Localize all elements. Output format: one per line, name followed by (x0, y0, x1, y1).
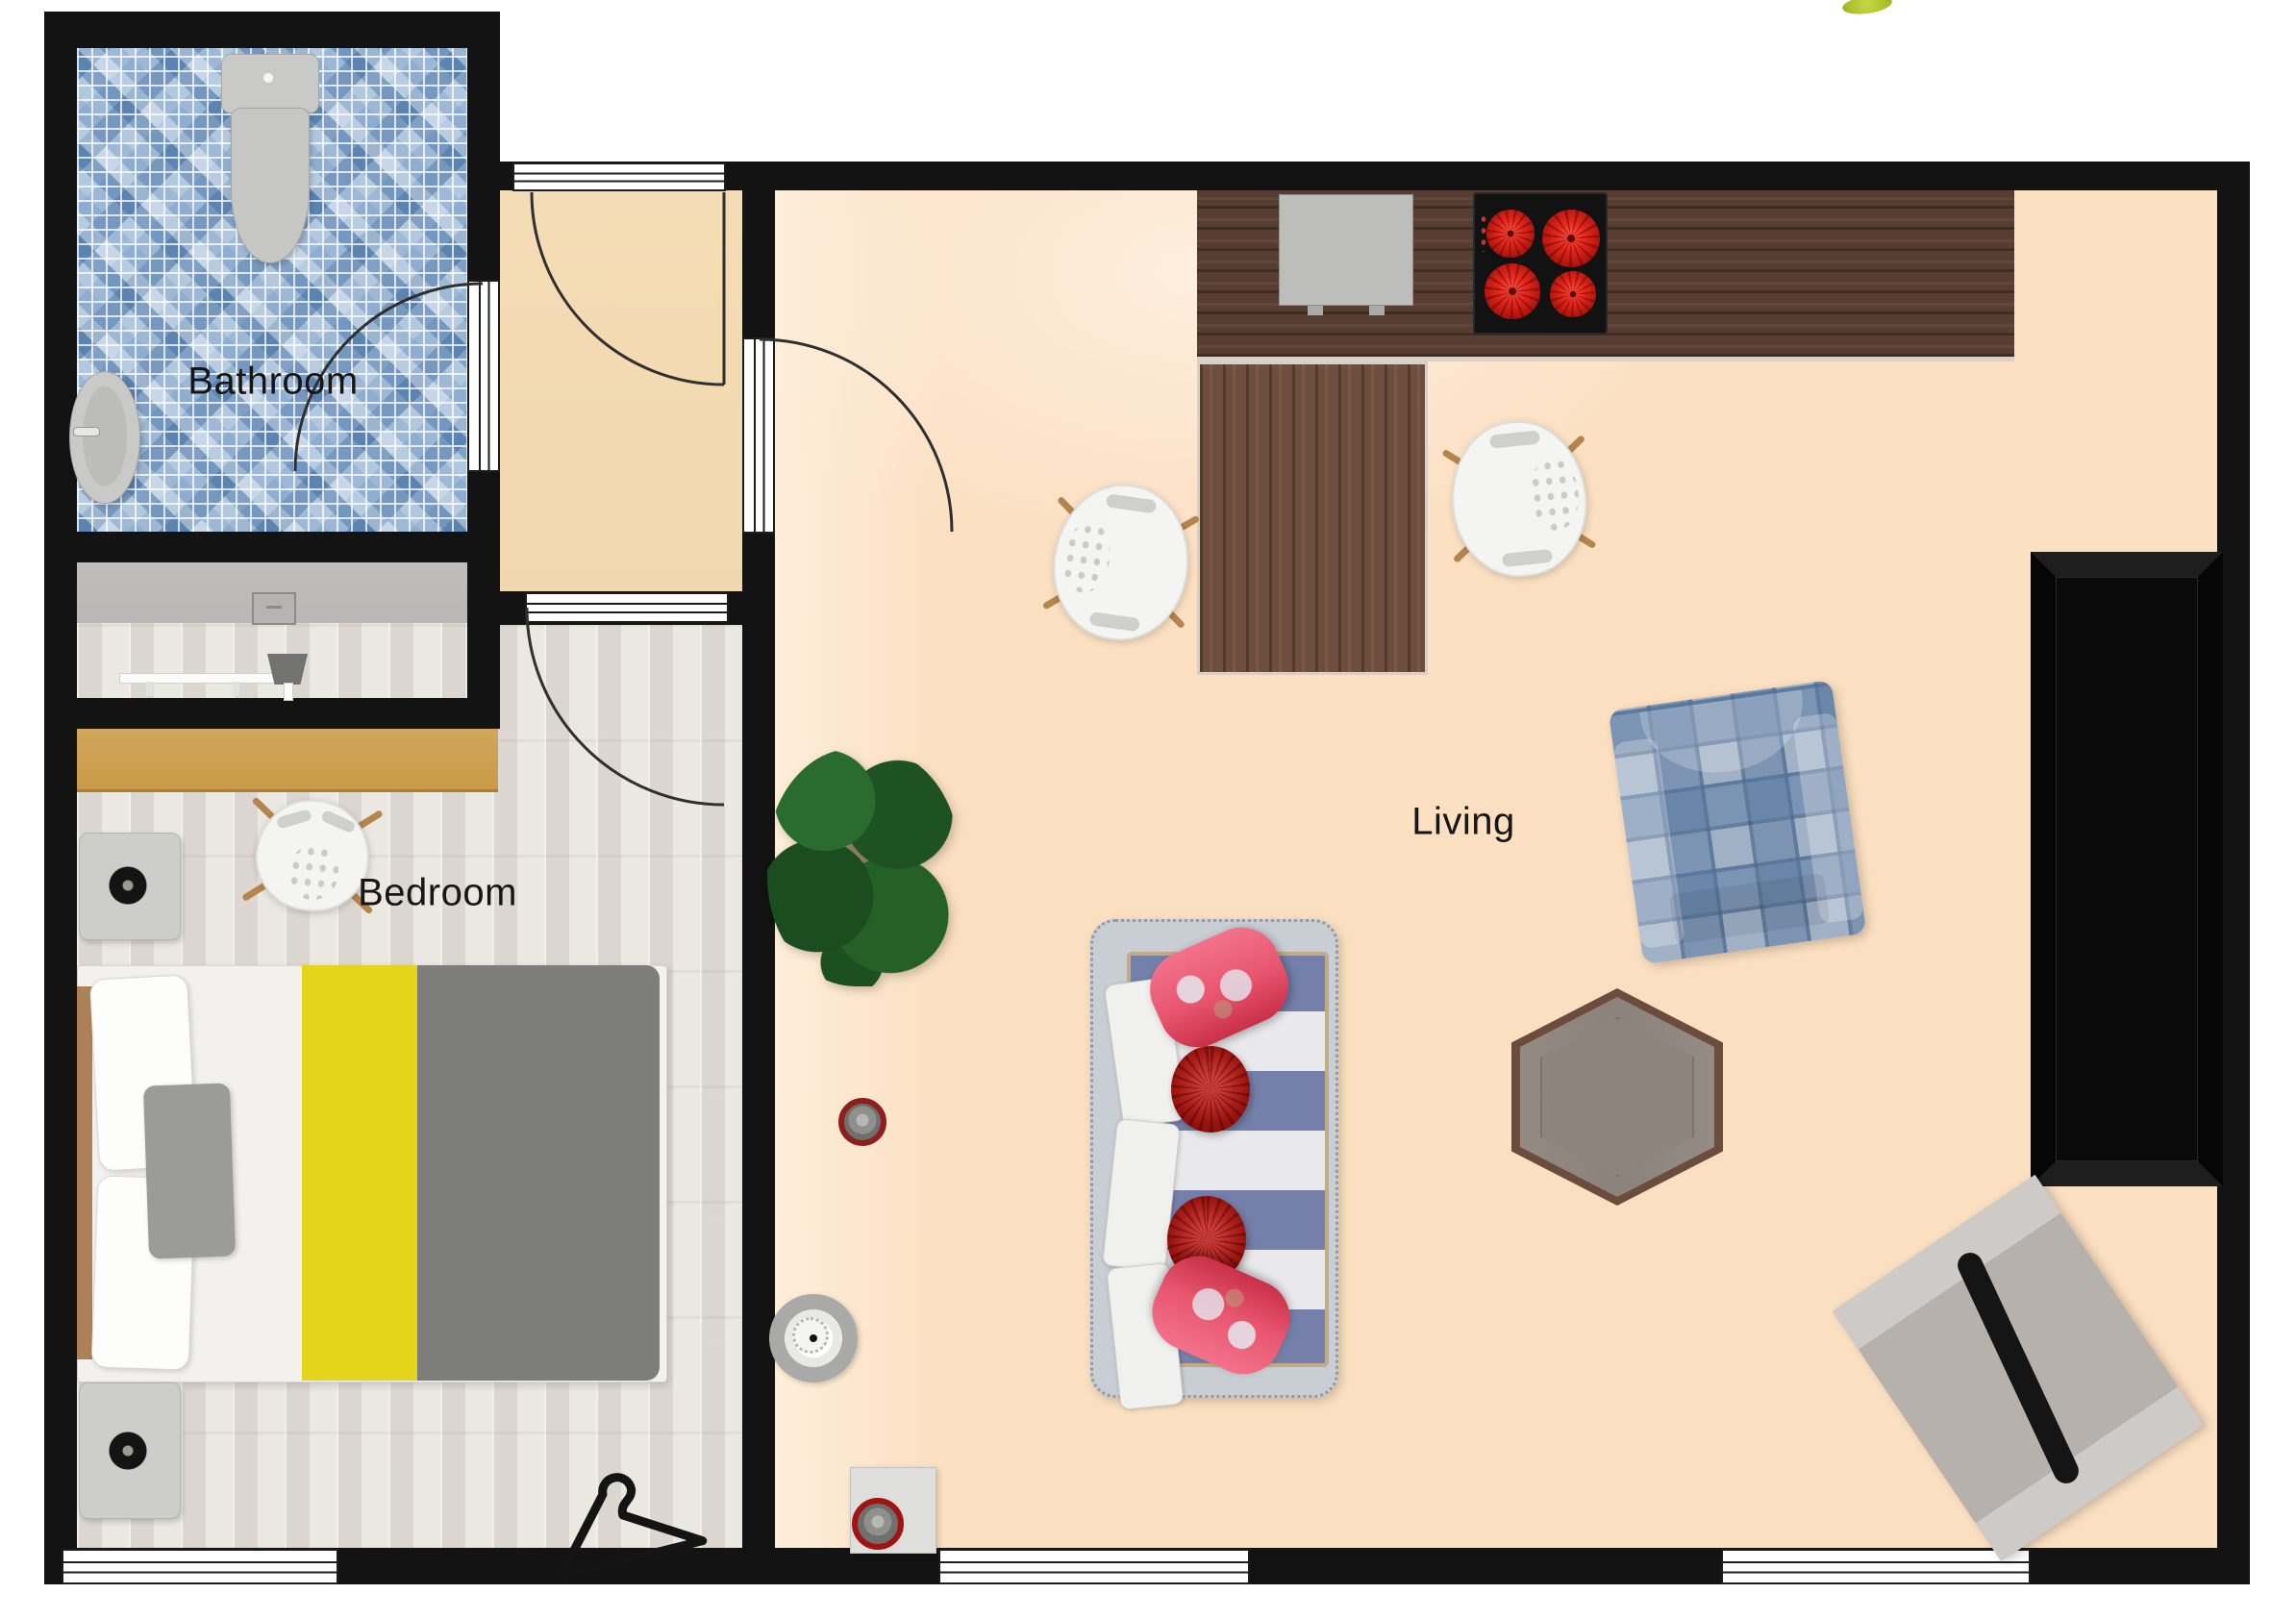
hallway-floor (500, 190, 742, 593)
chair-feather-pattern (286, 842, 341, 903)
floor-plan-canvas: Bathroom Bedroom Living (0, 0, 2296, 1619)
nightstand-speaker-top[interactable] (79, 833, 181, 940)
bench-black-bar (1954, 1249, 2083, 1487)
sofa-red-round-pillow (1171, 1046, 1250, 1133)
room-label-bathroom: Bathroom (187, 361, 358, 404)
dining-island[interactable] (1197, 361, 1428, 675)
bed-blanket-gray (417, 965, 660, 1381)
bathroom-door-frame[interactable] (467, 280, 500, 472)
chair-slot (1106, 493, 1157, 513)
cooktop-control-dots (1479, 213, 1488, 252)
bed-headboard (77, 986, 92, 1359)
chair-feather-pattern (1527, 456, 1583, 534)
living-window-right[interactable] (1721, 1549, 2031, 1584)
living-window-left[interactable] (938, 1549, 1250, 1584)
speaker-icon (107, 1430, 149, 1472)
nightstand-speaker-bottom[interactable] (79, 1382, 181, 1519)
bed-yellow-runner (302, 965, 417, 1381)
bathroom-sink-basin (83, 386, 127, 486)
striped-sofa[interactable] (1090, 919, 1338, 1398)
wall-bedroom-living (742, 625, 775, 1550)
chair-slot (320, 809, 357, 834)
chair-slot (1489, 430, 1540, 448)
cooktop[interactable] (1473, 192, 1608, 335)
wall-left (44, 12, 77, 1584)
fan-center-dot (810, 1334, 817, 1342)
ceiling-fan-icon[interactable] (769, 1294, 858, 1382)
speaker-icon (107, 864, 149, 907)
ceiling-speaker-icon[interactable] (838, 1098, 886, 1146)
bedroom-door-frame[interactable] (525, 592, 729, 623)
chair-slot (276, 809, 312, 829)
chair-slot (1502, 549, 1553, 567)
burner-small (1486, 210, 1535, 258)
potted-plant[interactable] (767, 748, 960, 986)
bathroom-sink-faucet (73, 427, 100, 436)
burner-large (1485, 263, 1540, 319)
entry-door-frame[interactable] (512, 162, 726, 191)
kitchen-module-foot (1369, 306, 1385, 315)
wall-bathroom-bottom (44, 532, 500, 562)
bedroom-wall-desk[interactable] (77, 729, 498, 792)
chair-feather-pattern (1059, 519, 1114, 596)
burner-large (1542, 210, 1600, 267)
floor-drain-slot (266, 606, 282, 609)
armchair-back-cushion (1639, 689, 1811, 783)
burner-small (1550, 271, 1596, 317)
kitchen-module-foot (1308, 306, 1323, 315)
bedroom-window[interactable] (62, 1549, 338, 1584)
dining-chair-right[interactable] (1428, 402, 1611, 597)
wall-shelf-leg (146, 682, 153, 696)
living-door-frame[interactable] (742, 337, 775, 534)
wall-living-top (773, 162, 2250, 190)
bed-pillow-gray (143, 1083, 236, 1258)
wall-basin-stem (284, 683, 293, 701)
toilet-tank-button (263, 73, 273, 83)
toilet-tank[interactable] (221, 54, 319, 113)
ceiling-speaker-icon[interactable] (852, 1498, 904, 1550)
wall-shelf-leg (233, 682, 239, 696)
armchair-seat-front (1669, 873, 1831, 944)
chair-seat (1444, 414, 1594, 584)
tv-media-wall[interactable] (2031, 552, 2223, 1186)
room-label-living: Living (1411, 801, 1515, 844)
wall-bathroom-top (44, 12, 500, 48)
wall-shower-bottom (44, 698, 500, 729)
room-label-bedroom: Bedroom (358, 872, 517, 915)
toilet-bowl[interactable] (231, 108, 310, 263)
floor-drain[interactable] (252, 592, 296, 625)
dining-chair-left[interactable] (1027, 462, 1215, 662)
chair-slot (1089, 611, 1140, 632)
kitchen-module[interactable] (1279, 194, 1413, 306)
plaid-armchair[interactable] (1609, 680, 1867, 964)
leaf-artifact (1841, 0, 1893, 17)
